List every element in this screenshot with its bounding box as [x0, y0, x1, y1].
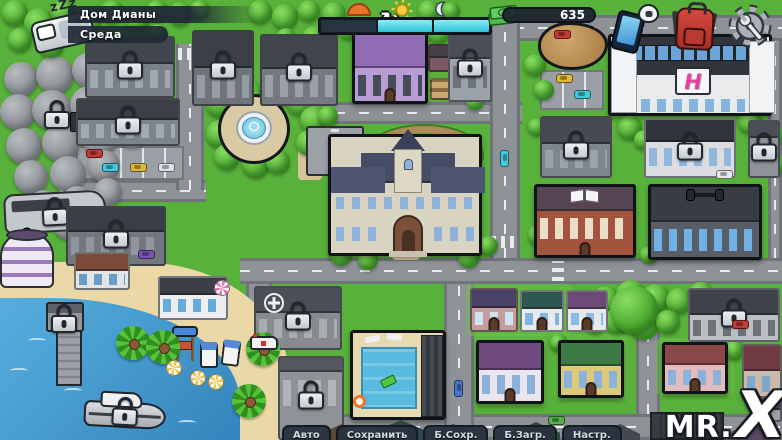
lock-icon: [117, 50, 143, 79]
locked-tree: [6, 128, 42, 164]
cottage-purple-roof: [566, 290, 608, 332]
time-segment-past: [321, 20, 376, 32]
car: [716, 170, 733, 179]
tab-quick-load[interactable]: Б.Загр.: [493, 425, 556, 440]
windows: [434, 227, 480, 241]
lounger: [365, 335, 381, 344]
save-load-tabbar: АвтоСохранитьБ.Сохр.Б.Загр.Настр.: [282, 425, 622, 440]
house-locked-a: [192, 30, 254, 106]
open-book-icon: [570, 188, 600, 203]
lock-body: [115, 117, 141, 135]
lock-icon: [41, 196, 68, 226]
money-value: 635: [560, 8, 585, 22]
lock-icon: [286, 53, 312, 82]
car: [138, 250, 155, 259]
location-banner: Дом Дианы: [68, 6, 260, 23]
windows: [336, 227, 382, 241]
tower-roof: [391, 129, 425, 151]
roof: [568, 292, 606, 309]
lock-body: [285, 312, 311, 330]
lock-body: [44, 111, 70, 129]
gray-mansion: [688, 288, 780, 342]
lock-icon: [51, 304, 77, 333]
gear-wrench-icon: [724, 0, 776, 52]
time-segment-future: [378, 20, 433, 32]
round-tower-house: [0, 232, 54, 288]
treehouse-canopy: [610, 286, 658, 334]
lock-body: [563, 141, 589, 159]
house-locked-b: [260, 34, 338, 106]
decor: [273, 297, 276, 309]
tree: [656, 310, 680, 334]
road-segment: [490, 15, 520, 258]
car: [500, 150, 509, 167]
door: [586, 382, 597, 395]
pier: [46, 302, 106, 386]
roof: [472, 290, 516, 308]
game-town-map: zZz Дом Дианы Среда 635: [0, 0, 782, 440]
door: [505, 388, 516, 401]
beach-umbrella: [190, 370, 206, 386]
tower-cap: [6, 229, 48, 241]
school-left-roof: [331, 167, 385, 193]
beach-umbrella: [208, 374, 224, 390]
beach-umbrella: [214, 280, 230, 296]
roof: [355, 35, 425, 68]
tower-window: [404, 159, 413, 170]
phone-button[interactable]: [612, 4, 656, 52]
car: [548, 416, 565, 425]
hoop: [331, 129, 339, 132]
cabin: [200, 342, 218, 368]
car: [130, 163, 147, 172]
wave: [28, 338, 46, 343]
ambulance: [250, 334, 280, 352]
door: [582, 317, 593, 330]
wave: [10, 368, 28, 373]
door: [489, 317, 500, 330]
roof: [665, 345, 725, 365]
lock-icon: [115, 106, 141, 135]
lounger: [387, 333, 403, 341]
mall-logo-letter: H: [684, 70, 702, 94]
mall-logo-sign: H: [675, 67, 711, 95]
roof: [522, 292, 562, 309]
showroom: [644, 118, 736, 178]
lock-body: [751, 143, 777, 161]
lock-icon: [298, 380, 324, 409]
wave: [178, 420, 196, 425]
location-label: Дом Дианы: [80, 8, 156, 21]
car: [158, 163, 175, 172]
tab-quick-save[interactable]: Б.Сохр.: [423, 425, 488, 440]
time-segment-future: [434, 20, 489, 32]
tree-house[interactable]: [616, 294, 654, 334]
medical-cross-icon: [264, 293, 284, 313]
farm-house[interactable]: ↻: [352, 32, 428, 104]
locked-tree: [4, 62, 38, 96]
car: [574, 90, 591, 99]
lock-body: [111, 407, 138, 426]
school[interactable]: [328, 134, 482, 256]
cliff-lookout[interactable]: [538, 22, 608, 70]
inventory-button[interactable]: [671, 1, 717, 51]
road-segment: [240, 258, 782, 284]
beach-cabins: [200, 340, 242, 370]
lock-icon: [44, 100, 70, 129]
palm-tree: [232, 384, 266, 418]
tree: [298, 0, 320, 22]
lock-icon: [563, 130, 589, 159]
lock-body: [117, 61, 143, 79]
lock-body: [51, 315, 77, 333]
gym[interactable]: [648, 184, 762, 260]
cottage-teal-roof: [520, 290, 564, 332]
decor: [686, 189, 695, 201]
brown-roof-house: [74, 252, 130, 290]
car: [102, 163, 119, 172]
library[interactable]: [534, 184, 636, 258]
locked-tree: [0, 94, 36, 130]
gray-house: [540, 116, 612, 178]
day-banner: Среда: [68, 26, 168, 43]
backpack-handle: [688, 2, 708, 15]
tree: [8, 28, 32, 52]
palm-tree: [116, 326, 150, 360]
barn-shed: [428, 44, 450, 72]
tab-auto[interactable]: Авто: [282, 425, 331, 440]
lifebuoy: [353, 395, 366, 408]
lock-body: [286, 64, 312, 82]
time-of-day-widget: [318, 0, 486, 30]
car: [454, 380, 463, 397]
door: [580, 242, 591, 255]
lock-icon: [751, 132, 777, 161]
roof: [280, 358, 342, 372]
ambulance-light: [253, 334, 257, 337]
lock-icon: [285, 301, 311, 330]
store: [76, 98, 180, 146]
lock-icon: [111, 396, 138, 426]
decor: [570, 189, 584, 203]
pool-building: [421, 335, 443, 417]
cottage-pink: [470, 288, 518, 332]
car: [556, 74, 573, 83]
tab-settings[interactable]: Настр.: [562, 425, 622, 440]
lock-body: [457, 60, 483, 78]
tree: [272, 4, 298, 30]
decor: [585, 189, 599, 203]
school-steps: [389, 251, 427, 257]
mrx-watermark: MR. X: [665, 388, 782, 440]
roof: [430, 46, 448, 58]
lock-icon: [103, 219, 129, 248]
lock-icon: [457, 49, 483, 78]
lock-body: [677, 142, 703, 160]
backpack-pocket: [683, 27, 706, 46]
tower-body: [394, 149, 422, 193]
fountain-jet: [249, 122, 259, 131]
ambulance-cross: [261, 341, 266, 346]
tree: [534, 80, 554, 100]
door: [537, 317, 548, 330]
school-tower: [391, 129, 425, 193]
windows: [163, 299, 223, 312]
palm-tree: [146, 330, 180, 364]
windows: [79, 274, 125, 285]
pier-walkway: [56, 328, 82, 386]
lock-body: [42, 207, 69, 226]
roof: [76, 254, 128, 271]
roof: [479, 343, 541, 370]
watermark-x: X: [730, 388, 782, 440]
car: [86, 149, 103, 158]
lock-body: [103, 230, 129, 248]
car: [732, 320, 749, 329]
decor: [715, 189, 724, 201]
door: [385, 88, 396, 101]
church: [448, 30, 492, 102]
lock-body: [210, 62, 236, 80]
windows: [540, 218, 630, 240]
windows: [654, 229, 756, 251]
seat: [178, 341, 192, 350]
dumbbell-icon: [686, 188, 724, 202]
school-entrance: [393, 215, 423, 255]
watermark-prefix: MR.: [665, 410, 733, 440]
locked-tree: [36, 56, 74, 94]
tab-save[interactable]: Сохранить: [336, 425, 419, 440]
crosswalk: [552, 261, 564, 281]
tree: [318, 106, 338, 126]
day-label: Среда: [80, 28, 122, 41]
pink-house[interactable]: [662, 342, 728, 394]
roof: [561, 343, 621, 366]
pool-area[interactable]: [350, 330, 446, 420]
windows: [641, 99, 745, 112]
lock-icon: [210, 51, 236, 80]
money-display: 635: [502, 7, 596, 23]
beach-umbrella: [166, 360, 182, 376]
purple-house[interactable]: [476, 340, 544, 404]
roof: [744, 346, 780, 371]
time-progress-bar: [318, 17, 492, 35]
notification-bubble-icon: [638, 4, 659, 23]
settings-button[interactable]: [724, 0, 778, 52]
workshop: [748, 120, 780, 178]
school-right-roof: [431, 167, 485, 193]
lock-body: [298, 391, 324, 409]
yacht: [83, 388, 169, 434]
yellow-house[interactable]: [558, 340, 624, 398]
car: [554, 30, 571, 39]
lock-icon: [677, 131, 703, 160]
cabin: [220, 339, 241, 367]
windows: [336, 197, 480, 209]
wave: [64, 388, 82, 393]
